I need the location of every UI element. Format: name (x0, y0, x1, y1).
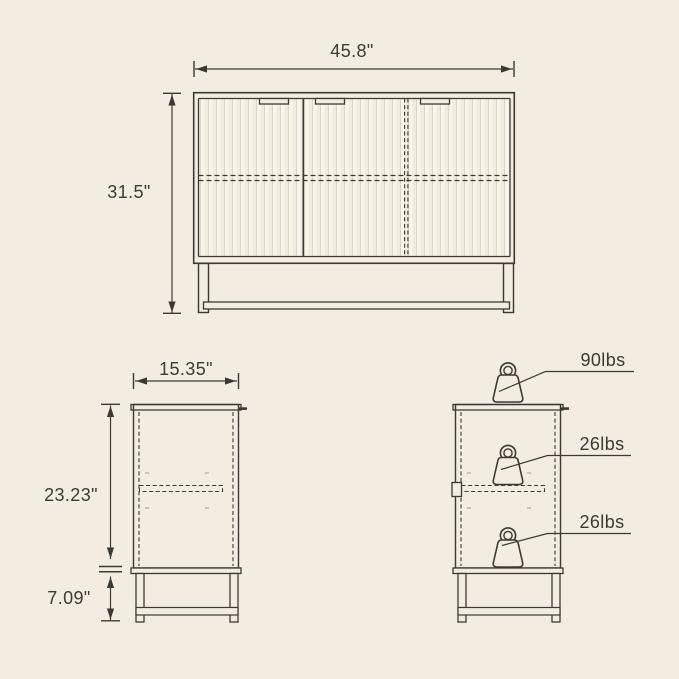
leg-stretcher-bar (204, 302, 510, 309)
capacity-label-top: 90lbs (553, 351, 653, 369)
width-dimension-label: 45.8" (300, 42, 404, 60)
door-handle-notch (260, 99, 289, 105)
arrowhead-up (168, 95, 175, 106)
arrowhead-up (107, 577, 114, 588)
door-edge-tab (561, 407, 569, 410)
arrowhead-right (501, 65, 512, 72)
body-height-dimension-label: 23.23" (38, 486, 104, 504)
hidden-shelf-bar (462, 486, 545, 492)
front-view-drawing (163, 61, 514, 313)
door-handle-notch (421, 99, 450, 105)
hinge-block (452, 483, 462, 497)
door-handle-notch (316, 99, 345, 105)
weight-shelf (493, 445, 523, 484)
arrowhead-down (168, 302, 175, 313)
line-drawing (0, 0, 679, 679)
side-top-slab (453, 405, 563, 411)
side-stretcher-bar (458, 608, 560, 616)
arrowhead-down (107, 548, 114, 559)
depth-dimension-label: 15.35" (134, 360, 238, 378)
capacity-view-drawing (452, 363, 634, 622)
arrowhead-left (136, 377, 147, 384)
door-panels (199, 99, 511, 257)
capacity-label-shelf: 26lbs (552, 435, 652, 453)
door-edge-tab (239, 407, 247, 410)
leg-height-dimension-label: 7.09" (36, 589, 102, 607)
arrowhead-right (225, 377, 236, 384)
side-top-slab (131, 405, 241, 411)
side-bottom-slab (453, 568, 563, 574)
capacity-label-bottom: 26lbs (552, 513, 652, 531)
furniture-dimension-diagram: 45.8" 31.5" 15.35" 23.23" 7.09" 90lbs 26… (0, 0, 679, 679)
cam-lock-dots (145, 473, 209, 508)
height-dimension-label: 31.5" (98, 183, 160, 201)
side-stretcher-bar (136, 608, 238, 616)
weight-top (493, 363, 523, 402)
arrowhead-down (107, 609, 114, 620)
side-body-outline (134, 405, 239, 569)
hidden-shelf-bar (140, 486, 223, 492)
arrowhead-up (107, 406, 114, 417)
side-bottom-slab (131, 568, 241, 574)
dimension-break-marks (99, 567, 122, 572)
weight-bottom (493, 528, 523, 567)
hidden-edge-line (139, 412, 233, 566)
arrowhead-left (196, 65, 207, 72)
side-view-drawing (99, 373, 247, 622)
leader-line-26lbs-bottom (502, 534, 631, 546)
